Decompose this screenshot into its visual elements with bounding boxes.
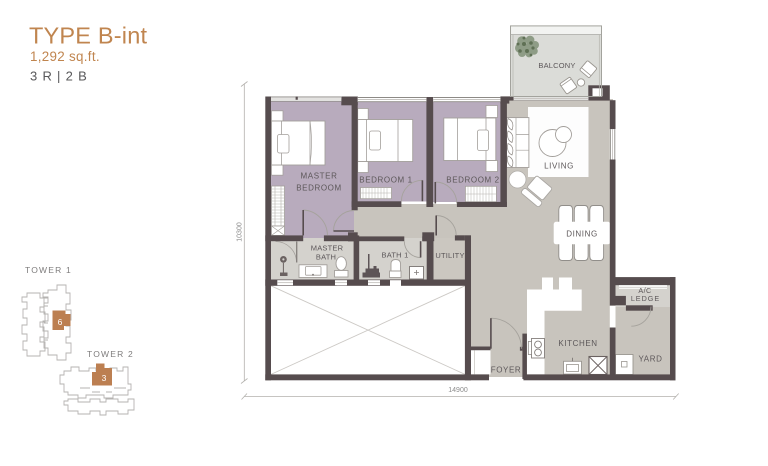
svg-text:DINING: DINING [566, 230, 598, 239]
svg-text:3: 3 [102, 373, 107, 383]
svg-text:BALCONY: BALCONY [538, 61, 575, 70]
svg-text:TOWER 2: TOWER 2 [87, 349, 134, 359]
svg-text:6: 6 [58, 317, 63, 327]
svg-text:3 R | 2 B: 3 R | 2 B [30, 69, 88, 84]
svg-text:BEDROOM 2: BEDROOM 2 [446, 176, 499, 185]
svg-text:14900: 14900 [448, 387, 468, 394]
svg-text:BATH: BATH [316, 253, 336, 262]
svg-text:TOWER 1: TOWER 1 [25, 265, 72, 275]
svg-text:KITCHEN: KITCHEN [558, 339, 597, 348]
svg-text:10300: 10300 [237, 222, 244, 242]
svg-text:TYPE B-int: TYPE B-int [29, 23, 147, 49]
svg-text:BATH 1: BATH 1 [382, 251, 409, 260]
svg-text:BEDROOM 1: BEDROOM 1 [359, 176, 412, 185]
svg-text:LEDGE: LEDGE [631, 294, 660, 303]
svg-text:1,292 sq.ft.: 1,292 sq.ft. [30, 49, 100, 64]
svg-text:YARD: YARD [638, 355, 662, 364]
svg-text:MASTER: MASTER [311, 244, 344, 253]
svg-text:BEDROOM: BEDROOM [296, 184, 342, 193]
svg-text:MASTER: MASTER [301, 172, 338, 181]
svg-text:LIVING: LIVING [544, 162, 574, 171]
svg-text:FOYER: FOYER [491, 366, 522, 375]
svg-text:UTILITY: UTILITY [435, 251, 464, 260]
